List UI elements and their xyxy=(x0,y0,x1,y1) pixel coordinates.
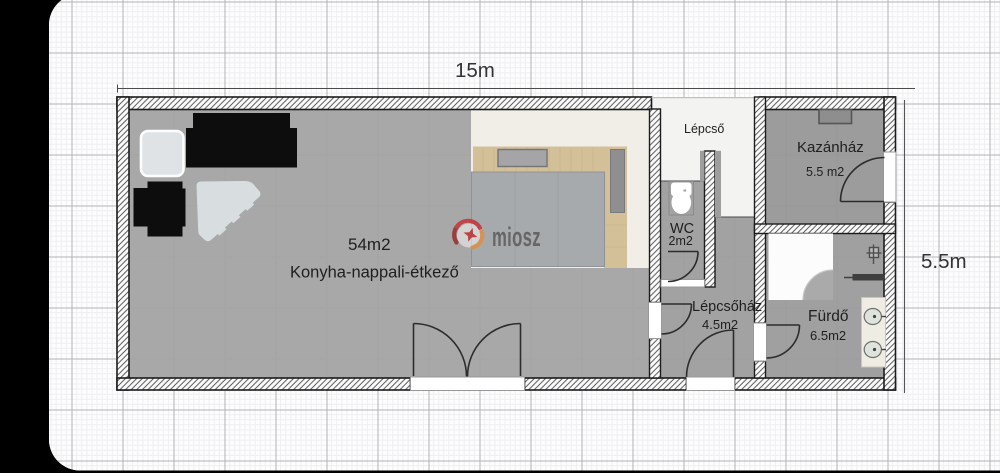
svg-text:4.5m2: 4.5m2 xyxy=(702,317,738,332)
svg-text:5.5m: 5.5m xyxy=(921,250,967,273)
svg-text:15m: 15m xyxy=(455,59,495,82)
svg-text:Fürdő: Fürdő xyxy=(808,308,849,325)
svg-text:2m2: 2m2 xyxy=(669,234,693,248)
svg-text:5.5 m2: 5.5 m2 xyxy=(806,165,844,179)
svg-text:Lépcsőház: Lépcsőház xyxy=(692,299,762,315)
svg-text:Konyha-nappali-étkező: Konyha-nappali-étkező xyxy=(290,264,459,282)
svg-text:Lépcső: Lépcső xyxy=(684,122,724,136)
svg-text:6.5m2: 6.5m2 xyxy=(810,328,846,343)
svg-text:Kazánház: Kazánház xyxy=(797,139,864,156)
svg-text:54m2: 54m2 xyxy=(348,235,391,254)
svg-text:miosz: miosz xyxy=(492,222,541,252)
